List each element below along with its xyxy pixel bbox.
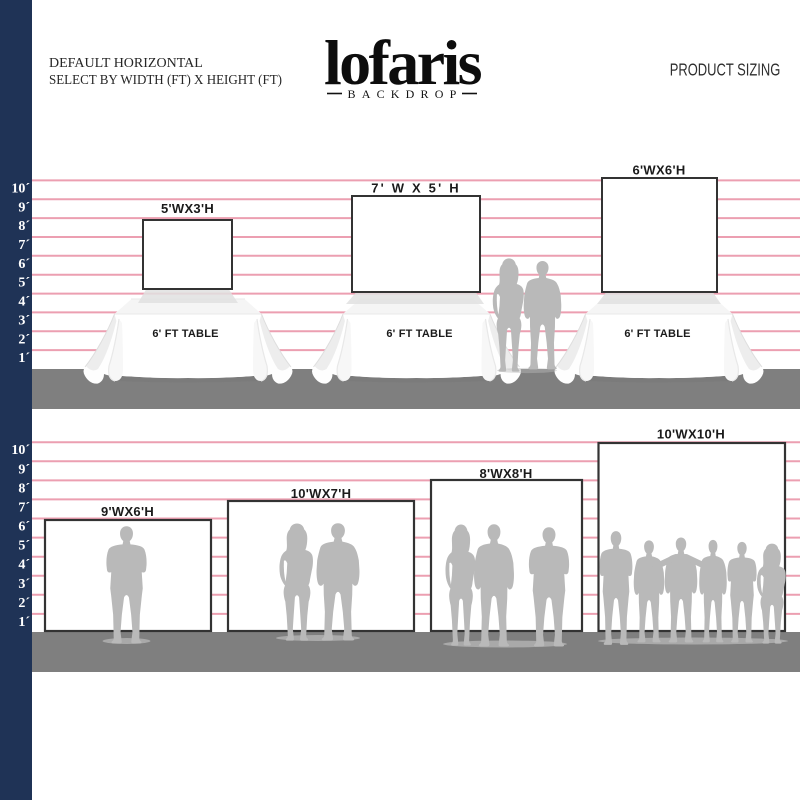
svg-text:DEFAULT HORIZONTAL: DEFAULT HORIZONTAL — [49, 56, 203, 71]
svg-text:1´: 1´ — [18, 351, 30, 366]
svg-text:9´: 9´ — [18, 462, 30, 477]
svg-text:SELECT BY WIDTH (FT) X HEIGHT: SELECT BY WIDTH (FT) X HEIGHT (FT) — [49, 73, 282, 88]
svg-text:4´: 4´ — [18, 558, 30, 573]
svg-text:7´: 7´ — [18, 500, 30, 515]
svg-text:7´: 7´ — [18, 238, 30, 253]
svg-text:8´: 8´ — [18, 219, 30, 234]
svg-text:9´: 9´ — [18, 200, 30, 215]
svg-text:3´: 3´ — [18, 313, 30, 328]
svg-text:5´: 5´ — [18, 276, 30, 291]
svg-text:1´: 1´ — [18, 615, 30, 630]
svg-text:6´: 6´ — [18, 520, 30, 535]
svg-text:5'WX3'H: 5'WX3'H — [161, 201, 214, 216]
svg-text:6' FT TABLE: 6' FT TABLE — [152, 328, 218, 340]
svg-text:10´: 10´ — [11, 181, 30, 196]
svg-text:PRODUCT SIZING: PRODUCT SIZING — [670, 61, 781, 81]
svg-text:4´: 4´ — [18, 295, 30, 310]
svg-text:BACKDROP: BACKDROP — [348, 87, 463, 101]
svg-text:10'WX7'H: 10'WX7'H — [291, 486, 352, 501]
svg-text:8'WX8'H: 8'WX8'H — [479, 466, 532, 481]
svg-text:6' FT TABLE: 6' FT TABLE — [386, 328, 452, 340]
svg-text:7' W X 5' H: 7' W X 5' H — [371, 181, 461, 196]
svg-text:6'WX6'H: 6'WX6'H — [632, 163, 685, 178]
svg-text:10´: 10´ — [11, 443, 30, 458]
svg-text:2´: 2´ — [18, 332, 30, 347]
svg-text:2´: 2´ — [18, 596, 30, 611]
svg-text:10'WX10'H: 10'WX10'H — [657, 427, 725, 442]
svg-text:6´: 6´ — [18, 257, 30, 272]
svg-text:5´: 5´ — [18, 539, 30, 554]
svg-text:3´: 3´ — [18, 577, 30, 592]
svg-text:8´: 8´ — [18, 481, 30, 496]
svg-text:9'WX6'H: 9'WX6'H — [101, 504, 154, 519]
svg-text:6' FT TABLE: 6' FT TABLE — [624, 328, 690, 340]
